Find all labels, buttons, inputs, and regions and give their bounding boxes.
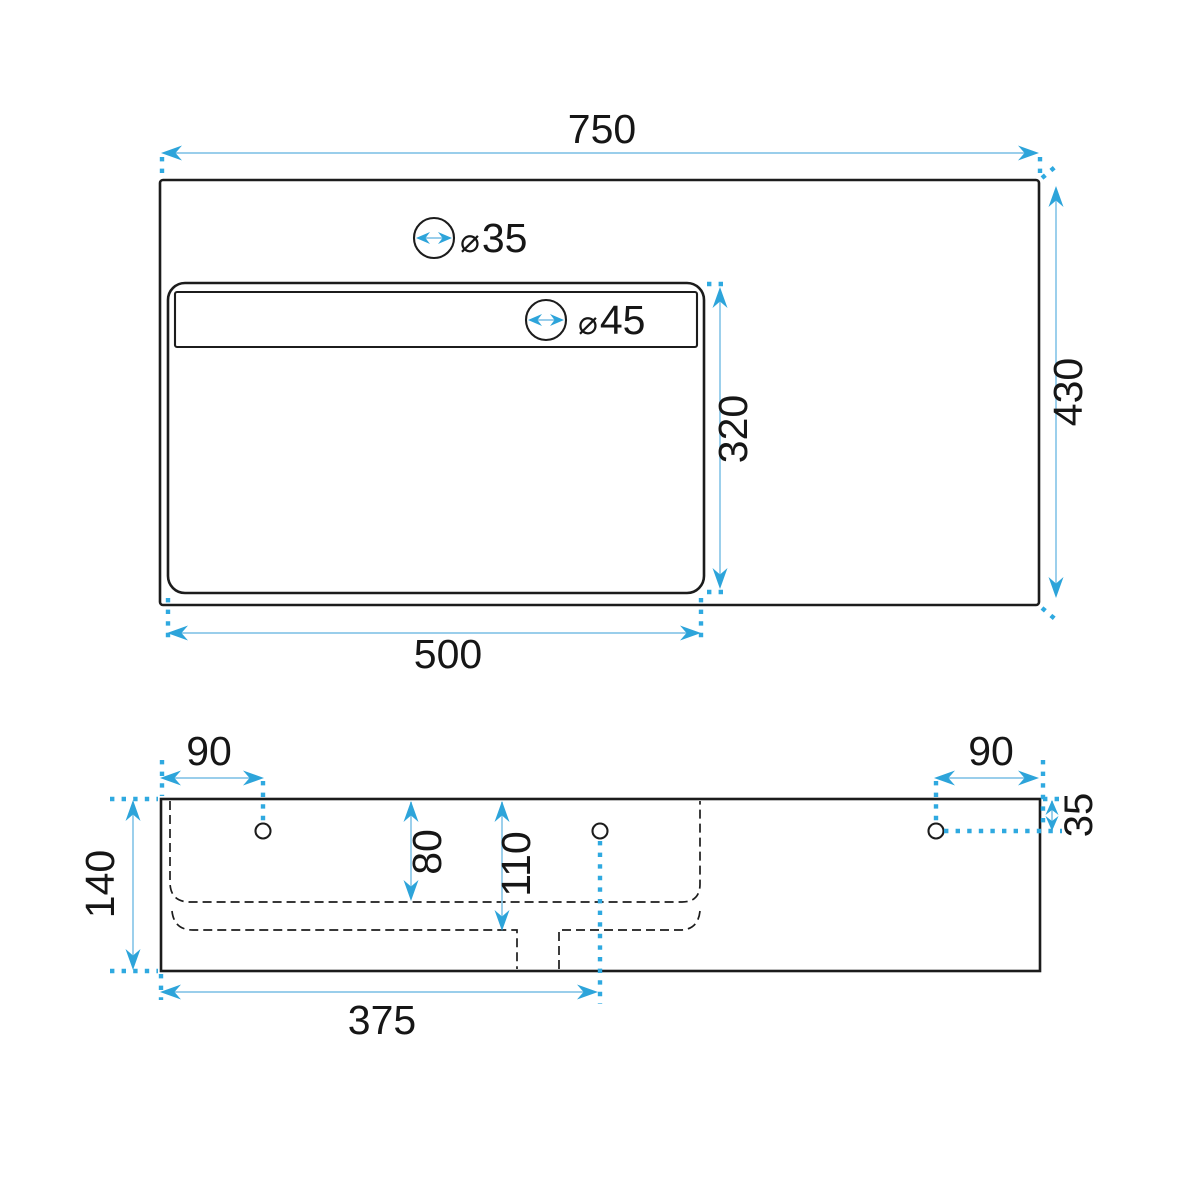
dim-320-label: 320 [710, 395, 756, 463]
faucet-hole-35: ⌀35 [414, 215, 527, 261]
hidden-bowl-contour-right [559, 911, 700, 969]
dim-90-left: 90 [160, 728, 264, 821]
hidden-bowl-contour-left [172, 911, 517, 969]
dim-110-label: 110 [493, 831, 539, 896]
dim-90-right-label: 90 [968, 728, 1014, 774]
dim-750-label: 750 [568, 106, 636, 152]
front-hole-right [929, 824, 944, 839]
dim-90-right: 90 [934, 728, 1043, 827]
washbasin-drawing: ⌀35 ⌀45 750 430 [0, 0, 1200, 1200]
extension-dotted-top [1042, 167, 1055, 178]
dim-80-label: 80 [404, 829, 450, 875]
dim-35-label: 35 [1057, 793, 1101, 838]
dim-110: 110 [493, 801, 539, 931]
dim-500-label: 500 [414, 631, 482, 677]
front-hole-left [256, 824, 271, 839]
dim-375-label: 375 [348, 997, 416, 1043]
dim-80: 80 [404, 801, 451, 901]
dim-140: 140 [77, 799, 158, 971]
dim-430: 430 [1042, 167, 1091, 619]
overflow-hole-label: ⌀45 [578, 297, 645, 343]
dim-140-label: 140 [77, 850, 123, 918]
technical-drawing-page: ⌀35 ⌀45 750 430 [0, 0, 1200, 1200]
overflow-hole-45: ⌀45 [526, 297, 645, 343]
dim-430-label: 430 [1045, 358, 1091, 426]
front-view-slab-outline [161, 799, 1040, 971]
faucet-hole-label: ⌀35 [460, 215, 527, 261]
front-hole-middle [593, 824, 608, 839]
front-view: 90 90 35 140 [77, 728, 1101, 1043]
dim-320: 320 [707, 284, 756, 592]
top-view: ⌀35 ⌀45 750 430 [160, 106, 1091, 677]
dim-500: 500 [167, 598, 701, 677]
top-view-slab-outline [160, 180, 1039, 605]
dim-90-left-label: 90 [186, 728, 232, 774]
extension-dotted-bottom [1042, 608, 1055, 619]
dim-750: 750 [161, 106, 1040, 176]
